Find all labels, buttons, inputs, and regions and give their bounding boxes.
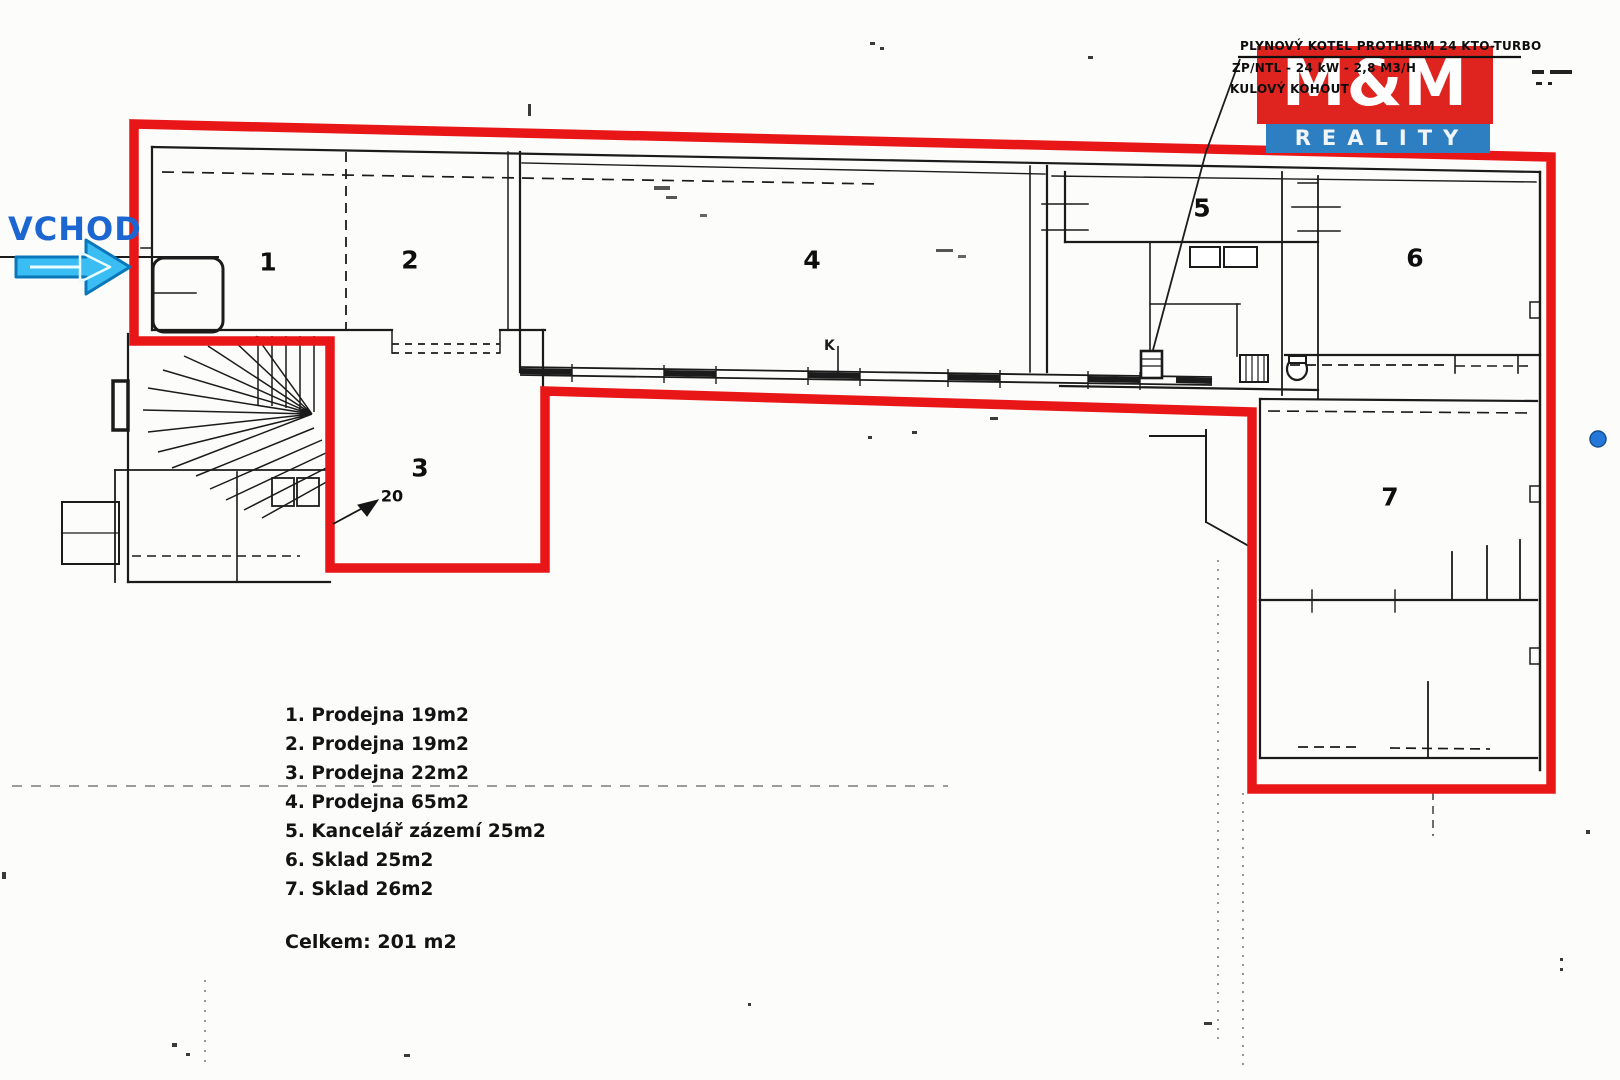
scan-noise [2, 42, 1590, 1057]
boiler [1141, 351, 1162, 378]
annotation-line3: KULOVÝ KOHOUT [1230, 79, 1542, 101]
sink [1190, 247, 1220, 267]
room-label-5: 5 [1193, 194, 1210, 223]
legend-item-1: 1. Prodejna 19m2 [285, 701, 546, 730]
door-width-label: 20 [381, 487, 403, 506]
legend-item-7: 7. Sklad 26m2 [285, 875, 546, 904]
legend-item-6: 6. Sklad 25m2 [285, 846, 546, 875]
sink [1224, 247, 1257, 267]
legend-item-2: 2. Prodejna 19m2 [285, 730, 546, 759]
blue-dot [1590, 431, 1606, 447]
dashed-lines [12, 152, 1530, 1066]
legend-item-4: 4. Prodejna 65m2 [285, 788, 546, 817]
legend-total: Celkem: 201 m2 [285, 931, 546, 953]
logo-reality-text: REALITY [1266, 124, 1490, 153]
room-label-1: 1 [259, 248, 276, 277]
annotation-line2: ZP/NTL - 24 kW - 2,8 M3/H [1232, 58, 1542, 80]
room-label-3: 3 [411, 454, 428, 483]
legend-item-3: 3. Prodejna 22m2 [285, 759, 546, 788]
floor-plan-page: K [0, 0, 1620, 1080]
building-walls [0, 147, 1540, 770]
room-label-4: 4 [803, 246, 820, 275]
door-leader [333, 500, 378, 524]
room-label-7: 7 [1381, 483, 1398, 512]
boiler-annotation: PLYNOVÝ KOTEL PROTHERM 24 KTO-TURBO ZP/N… [1240, 36, 1542, 101]
room-legend: 1. Prodejna 19m2 2. Prodejna 19m2 3. Pro… [285, 701, 546, 953]
entrance-arrow-icon [16, 240, 130, 294]
floor-plan-drawing: K [0, 0, 1620, 1080]
room-label-6: 6 [1406, 244, 1423, 273]
room-label-2: 2 [401, 246, 418, 275]
toilet [1287, 356, 1307, 380]
legend-item-5: 5. Kancelář zázemí 25m2 [285, 817, 546, 846]
radiator [1240, 355, 1268, 382]
room4-window-wall [520, 346, 1212, 390]
k-mark: K [824, 338, 836, 354]
entrance-label: VCHOD [8, 210, 142, 248]
annotation-line1: PLYNOVÝ KOTEL PROTHERM 24 KTO-TURBO [1240, 36, 1542, 58]
